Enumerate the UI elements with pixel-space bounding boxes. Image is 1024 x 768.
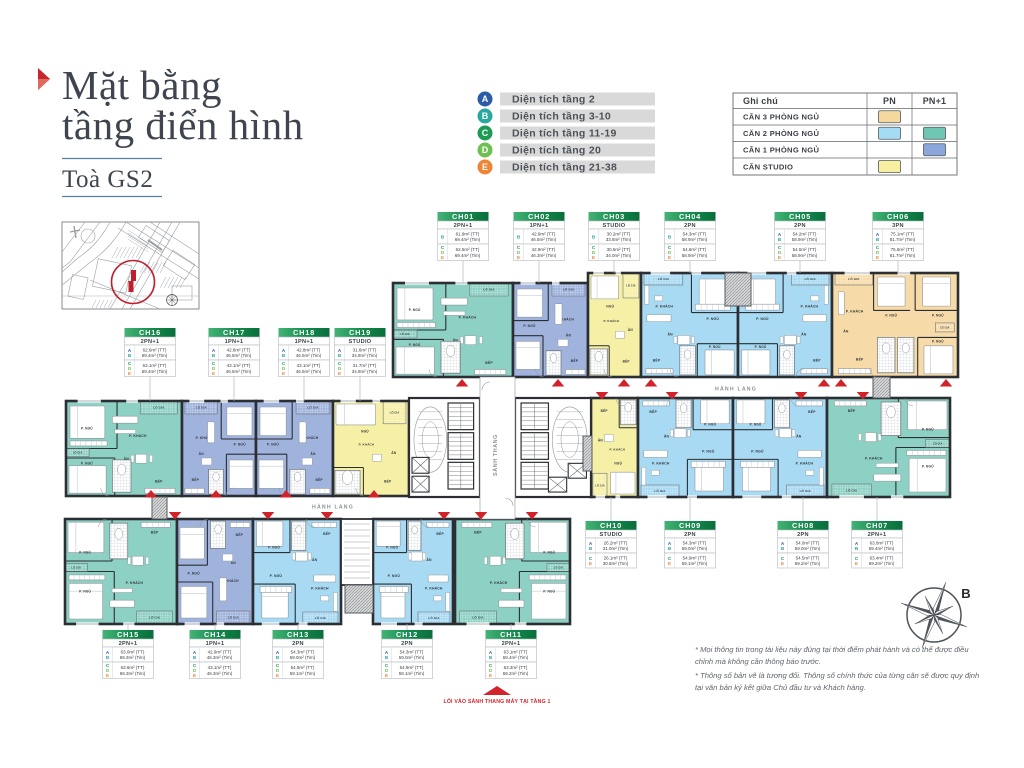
svg-text:P. NGỦ: P. NGỦ <box>81 461 93 466</box>
svg-text:E: E <box>592 255 595 260</box>
svg-text:P. KHÁCH: P. KHÁCH <box>796 460 814 465</box>
svg-text:P. NGỦ: P. NGỦ <box>922 427 934 432</box>
svg-text:59.0m² (Tim): 59.0m² (Tim) <box>399 655 425 660</box>
svg-text:LỐI VÀO SẢNH THANG MÁY TẠI TẦN: LỐI VÀO SẢNH THANG MÁY TẠI TẦNG 1 <box>443 698 550 705</box>
svg-text:2PN+1: 2PN+1 <box>868 532 887 538</box>
svg-text:E: E <box>385 673 388 678</box>
svg-text:CH12: CH12 <box>396 630 418 639</box>
svg-text:46.5m² (Tim): 46.5m² (Tim) <box>296 369 322 374</box>
svg-text:58.9m² (Tim): 58.9m² (Tim) <box>682 253 708 258</box>
svg-text:CH09: CH09 <box>679 521 701 530</box>
svg-text:E: E <box>482 162 488 172</box>
svg-text:BẾP: BẾP <box>856 356 864 361</box>
svg-text:2PN: 2PN <box>794 223 806 229</box>
svg-text:1PN+1: 1PN+1 <box>225 339 244 345</box>
svg-text:58.9m² (Tim): 58.9m² (Tim) <box>792 237 818 242</box>
svg-text:E: E <box>489 673 492 678</box>
svg-text:42.9m² (TT): 42.9m² (TT) <box>208 649 232 654</box>
svg-text:46.5m² (Tim): 46.5m² (Tim) <box>531 237 557 242</box>
svg-text:E: E <box>778 255 781 260</box>
svg-text:CH08: CH08 <box>792 521 814 530</box>
svg-text:P. NGỦ: P. NGỦ <box>268 544 280 549</box>
svg-text:P. NGỦ: P. NGỦ <box>267 442 280 447</box>
svg-text:chỉnh mà không cần thông báo t: chỉnh mà không cần thông báo trước. <box>695 657 821 666</box>
svg-text:BẾP: BẾP <box>601 408 609 413</box>
svg-text:E: E <box>106 673 109 678</box>
svg-text:P. NGỦ: P. NGỦ <box>386 544 398 549</box>
svg-text:STUDIO: STUDIO <box>349 339 372 345</box>
svg-text:B: B <box>961 586 970 601</box>
svg-text:63.0m² (TT): 63.0m² (TT) <box>870 540 894 545</box>
svg-text:CH16: CH16 <box>139 328 161 337</box>
svg-text:69.3m² (Tim): 69.3m² (Tim) <box>120 671 146 676</box>
svg-text:Diện tích tầng 2: Diện tích tầng 2 <box>512 94 595 106</box>
svg-text:63.6m² (TT): 63.6m² (TT) <box>121 665 145 670</box>
svg-text:54.2m² (TT): 54.2m² (TT) <box>793 231 817 236</box>
svg-text:62.6m² (TT): 62.6m² (TT) <box>143 347 167 352</box>
svg-text:SẢNH THANG: SẢNH THANG <box>492 434 499 476</box>
svg-text:P. NGỦ: P. NGỦ <box>79 589 91 594</box>
svg-text:P. NGỦ: P. NGỦ <box>702 448 715 453</box>
svg-text:CH15: CH15 <box>117 630 139 639</box>
svg-text:BẾP: BẾP <box>808 409 816 414</box>
svg-text:75.1m² (TT): 75.1m² (TT) <box>891 231 915 236</box>
svg-text:ĂN: ĂN <box>664 434 670 439</box>
svg-text:CH06: CH06 <box>887 212 909 221</box>
svg-text:CĂN 2 PHÒNG NGỦ: CĂN 2 PHÒNG NGỦ <box>743 129 819 138</box>
svg-text:31.7m² (TT): 31.7m² (TT) <box>353 363 377 368</box>
svg-text:LÔ GIA: LÔ GIA <box>658 276 670 281</box>
svg-text:P. KHÁCH: P. KHÁCH <box>359 442 375 447</box>
svg-text:B: B <box>482 111 489 121</box>
svg-text:2PN+1: 2PN+1 <box>141 339 160 345</box>
svg-text:81.7m² (Tim): 81.7m² (Tim) <box>890 253 916 258</box>
svg-text:P. NGỦ: P. NGỦ <box>932 339 944 344</box>
svg-text:63.1m² (TT): 63.1m² (TT) <box>504 649 528 654</box>
svg-text:31.6m² (TT): 31.6m² (TT) <box>353 347 377 352</box>
svg-text:LÔ GIA: LÔ GIA <box>848 276 860 281</box>
svg-text:P. KHÁCH: P. KHÁCH <box>425 585 443 590</box>
svg-text:E: E <box>128 371 131 376</box>
svg-text:42.9m² (TT): 42.9m² (TT) <box>532 231 556 236</box>
svg-text:BẾP: BẾP <box>571 358 579 363</box>
svg-text:BẾP: BẾP <box>155 479 163 484</box>
svg-text:E: E <box>282 371 285 376</box>
svg-text:STUDIO: STUDIO <box>600 532 623 538</box>
svg-text:63.3m² (TT): 63.3m² (TT) <box>504 665 528 670</box>
svg-text:59.1m² (Tim): 59.1m² (Tim) <box>290 671 316 676</box>
svg-text:LÔ GIA: LÔ GIA <box>153 405 165 410</box>
svg-text:46.3m² (Tim): 46.3m² (Tim) <box>207 671 233 676</box>
svg-text:P. KHÁCH: P. KHÁCH <box>129 433 147 438</box>
svg-text:54.6m² (TT): 54.6m² (TT) <box>683 247 707 252</box>
svg-text:P. NGỦ: P. NGỦ <box>885 313 897 318</box>
svg-text:1PN+1: 1PN+1 <box>206 641 225 647</box>
svg-text:D: D <box>482 145 489 155</box>
svg-text:69.4m² (Tim): 69.4m² (Tim) <box>142 353 168 358</box>
svg-text:ĂN: ĂN <box>667 331 673 336</box>
svg-text:BẾP: BẾP <box>192 477 200 482</box>
svg-text:CĂN 1 PHÒNG NGỦ: CĂN 1 PHÒNG NGỦ <box>743 146 819 155</box>
svg-text:E: E <box>876 255 879 260</box>
svg-text:P. NGỦ: P. NGỦ <box>543 589 555 594</box>
svg-text:P. KHÁCH: P. KHÁCH <box>652 460 670 465</box>
svg-text:2PN+1: 2PN+1 <box>502 641 521 647</box>
svg-text:69.4m² (Tim): 69.4m² (Tim) <box>869 546 895 551</box>
svg-text:P. NGỦ: P. NGỦ <box>270 573 283 578</box>
svg-text:81.7m² (Tim): 81.7m² (Tim) <box>890 237 916 242</box>
svg-text:69.4m² (Tim): 69.4m² (Tim) <box>455 253 481 258</box>
svg-text:43.1m² (TT): 43.1m² (TT) <box>208 665 232 670</box>
svg-text:2PN: 2PN <box>292 641 304 647</box>
svg-text:P. NGỦ: P. NGỦ <box>543 550 555 555</box>
svg-text:CH17: CH17 <box>223 328 245 337</box>
svg-text:CH03: CH03 <box>603 212 625 221</box>
svg-text:E: E <box>517 255 520 260</box>
svg-text:58.9m² (Tim): 58.9m² (Tim) <box>682 237 708 242</box>
svg-text:63.4m² (TT): 63.4m² (TT) <box>870 555 894 560</box>
svg-text:Diện tích tầng 20: Diện tích tầng 20 <box>512 145 601 157</box>
svg-text:2PN+1: 2PN+1 <box>119 641 138 647</box>
svg-text:42.9m² (TT): 42.9m² (TT) <box>532 247 556 252</box>
svg-text:E: E <box>212 371 215 376</box>
svg-text:CH02: CH02 <box>528 212 550 221</box>
svg-text:P. NGỦ: P. NGỦ <box>750 422 762 427</box>
svg-text:BẾP: BẾP <box>474 530 482 535</box>
svg-text:ĂN: ĂN <box>598 438 604 443</box>
svg-text:42.8m² (TT): 42.8m² (TT) <box>297 347 321 352</box>
svg-text:P. NGỦ: P. NGỦ <box>922 463 934 468</box>
svg-text:E: E <box>441 255 444 260</box>
svg-text:P. KHÁCH: P. KHÁCH <box>490 580 508 585</box>
svg-text:BẾP: BẾP <box>384 479 392 484</box>
svg-text:LÔ GIA: LÔ GIA <box>800 488 812 493</box>
svg-text:31.0m² (Tim): 31.0m² (Tim) <box>603 546 629 551</box>
svg-text:CH01: CH01 <box>452 212 474 221</box>
svg-text:59.0m² (Tim): 59.0m² (Tim) <box>795 546 821 551</box>
svg-text:54.3m² (TT): 54.3m² (TT) <box>683 540 707 545</box>
svg-text:P. KHÁCH: P. KHÁCH <box>311 585 329 590</box>
svg-text:46.5m² (Tim): 46.5m² (Tim) <box>226 353 252 358</box>
svg-text:E: E <box>193 673 196 678</box>
svg-text:LÔ GIA: LÔ GIA <box>228 615 240 620</box>
svg-text:1PN+1: 1PN+1 <box>295 339 314 345</box>
svg-text:BẾP: BẾP <box>151 530 159 535</box>
svg-text:BẾP: BẾP <box>813 357 821 362</box>
svg-text:ĂN: ĂN <box>312 557 318 562</box>
svg-text:69.2m² (Tim): 69.2m² (Tim) <box>869 561 895 566</box>
svg-text:46.5m² (Tim): 46.5m² (Tim) <box>226 369 252 374</box>
svg-text:34.0m² (Tim): 34.0m² (Tim) <box>606 253 632 258</box>
svg-text:69.3m² (Tim): 69.3m² (Tim) <box>120 655 146 660</box>
svg-text:3PN: 3PN <box>892 223 904 229</box>
svg-text:P. KHÁCH: P. KHÁCH <box>801 303 819 308</box>
svg-text:tầng điển hình: tầng điển hình <box>62 102 304 148</box>
svg-text:Toà GS2: Toà GS2 <box>62 166 153 193</box>
svg-text:26.1m² (TT): 26.1m² (TT) <box>604 555 628 560</box>
svg-text:54.9m² (TT): 54.9m² (TT) <box>400 665 424 670</box>
svg-text:2PN: 2PN <box>401 641 413 647</box>
svg-text:Diện tích tầng 3-10: Diện tích tầng 3-10 <box>512 111 611 123</box>
svg-text:LÔ GIA: LÔ GIA <box>472 615 484 620</box>
svg-text:30.6m² (TT): 30.6m² (TT) <box>607 247 631 252</box>
svg-text:BẾP: BẾP <box>315 477 323 482</box>
svg-text:CĂN 3 PHÒNG NGỦ: CĂN 3 PHÒNG NGỦ <box>743 113 819 122</box>
svg-text:* Thông số bản vẽ là tương đối: * Thông số bản vẽ là tương đối. Thông số… <box>695 671 979 680</box>
svg-text:33.8m² (Tim): 33.8m² (Tim) <box>606 237 632 242</box>
svg-text:P. KHÁCH: P. KHÁCH <box>846 309 864 314</box>
svg-text:54.3m² (TT): 54.3m² (TT) <box>291 649 315 654</box>
svg-text:LÔ GIA: LÔ GIA <box>428 615 440 620</box>
svg-text:BẾP: BẾP <box>653 357 661 362</box>
svg-text:ĂN: ĂN <box>310 451 316 456</box>
svg-text:BẾP: BẾP <box>436 531 444 536</box>
svg-text:ĂN: ĂN <box>801 331 807 336</box>
svg-text:59.1m² (Tim): 59.1m² (Tim) <box>682 561 708 566</box>
svg-text:54.9m² (TT): 54.9m² (TT) <box>683 555 707 560</box>
svg-text:43.1m² (TT): 43.1m² (TT) <box>227 363 251 368</box>
svg-text:P. NGỦ: P. NGỦ <box>409 307 421 312</box>
svg-text:CĂN STUDIO: CĂN STUDIO <box>743 162 793 171</box>
svg-text:Diện tích tầng 21-38: Diện tích tầng 21-38 <box>512 162 617 174</box>
svg-text:P. KHÁCH: P. KHÁCH <box>655 303 673 308</box>
svg-text:ĂN: ĂN <box>796 434 802 439</box>
svg-text:59.0m² (Tim): 59.0m² (Tim) <box>290 655 316 660</box>
svg-text:P. NGỦ: P. NGỦ <box>756 316 769 321</box>
svg-text:LÔ GIA: LÔ GIA <box>805 276 817 281</box>
svg-text:ĂN: ĂN <box>426 557 432 562</box>
svg-text:HÀNH LANG: HÀNH LANG <box>312 504 354 511</box>
svg-text:E: E <box>589 561 592 566</box>
svg-text:59.2m² (Tim): 59.2m² (Tim) <box>795 561 821 566</box>
svg-text:ĂN: ĂN <box>566 333 572 338</box>
svg-text:P. NGỦ: P. NGỦ <box>751 448 764 453</box>
svg-text:LÔ GIA: LÔ GIA <box>563 287 575 292</box>
svg-text:P. KHÁCH: P. KHÁCH <box>459 315 477 320</box>
svg-text:P. NGỦ: P. NGỦ <box>81 426 93 431</box>
svg-text:CH05: CH05 <box>789 212 811 221</box>
svg-text:LÔ GIA: LÔ GIA <box>315 615 327 620</box>
svg-text:75.6m² (TT): 75.6m² (TT) <box>891 247 915 252</box>
svg-text:E: E <box>668 255 671 260</box>
svg-text:LÔ GIA: LÔ GIA <box>307 405 319 410</box>
svg-text:P. NGỦ: P. NGỦ <box>79 550 91 555</box>
svg-text:2PN: 2PN <box>684 532 696 538</box>
svg-text:A: A <box>482 94 489 104</box>
svg-text:P. NGỦ: P. NGỦ <box>755 344 767 349</box>
svg-text:2PN+1: 2PN+1 <box>454 223 473 229</box>
svg-text:69.4m² (Tim): 69.4m² (Tim) <box>142 369 168 374</box>
svg-text:ĂN: ĂN <box>391 450 397 455</box>
svg-text:NGỦ: NGỦ <box>614 460 622 465</box>
svg-text:58.9m² (Tim): 58.9m² (Tim) <box>792 253 818 258</box>
svg-text:63.1m² (TT): 63.1m² (TT) <box>143 363 167 368</box>
svg-text:30.8m² (Tim): 30.8m² (Tim) <box>603 561 629 566</box>
svg-text:CH07: CH07 <box>866 521 888 530</box>
svg-text:P. NGỦ: P. NGỦ <box>932 313 944 318</box>
svg-text:BẾP: BẾP <box>623 358 631 363</box>
svg-text:P. NGỦ: P. NGỦ <box>707 316 720 321</box>
svg-text:ĂN: ĂN <box>628 327 634 332</box>
svg-text:P. NGỦ: P. NGỦ <box>409 342 421 347</box>
svg-text:NGỦ: NGỦ <box>361 428 369 433</box>
svg-text:E: E <box>855 561 858 566</box>
svg-text:34.8m² (Tim): 34.8m² (Tim) <box>352 353 378 358</box>
svg-text:CH13: CH13 <box>287 630 309 639</box>
svg-text:Ghi chú: Ghi chú <box>743 96 778 106</box>
svg-text:CH11: CH11 <box>500 630 522 639</box>
svg-text:63.0m² (TT): 63.0m² (TT) <box>121 649 145 654</box>
svg-text:PN+1: PN+1 <box>923 96 947 106</box>
svg-text:NGỦ: NGỦ <box>606 303 614 308</box>
svg-text:E: E <box>338 371 341 376</box>
svg-text:ĂN: ĂN <box>199 451 205 456</box>
svg-text:34.8m² (Tim): 34.8m² (Tim) <box>352 369 378 374</box>
svg-text:HÀNH LANG: HÀNH LANG <box>715 386 757 393</box>
svg-text:C: C <box>482 128 489 138</box>
svg-text:30.2m² (TT): 30.2m² (TT) <box>607 231 631 236</box>
svg-text:P. NGỦ: P. NGỦ <box>704 422 716 427</box>
svg-text:69.2m² (Tim): 69.2m² (Tim) <box>503 671 529 676</box>
svg-text:CH18: CH18 <box>293 328 315 337</box>
svg-text:54.3m² (TT): 54.3m² (TT) <box>683 231 707 236</box>
svg-text:BẾP: BẾP <box>236 532 244 537</box>
svg-text:LÔ GIA: LÔ GIA <box>149 615 161 620</box>
svg-text:61.9m² (TT): 61.9m² (TT) <box>456 231 480 236</box>
svg-text:P. NGỦ: P. NGỦ <box>234 442 247 447</box>
svg-text:P. NGỦ: P. NGỦ <box>523 323 536 328</box>
svg-text:P. KHÁCH: P. KHÁCH <box>865 455 883 460</box>
svg-text:62.5m² (TT): 62.5m² (TT) <box>456 247 480 252</box>
svg-text:BẾP: BẾP <box>848 408 856 413</box>
svg-text:43.1m² (TT): 43.1m² (TT) <box>297 363 321 368</box>
svg-text:STUDIO: STUDIO <box>603 223 626 229</box>
svg-text:LÔ GIA: LÔ GIA <box>483 287 495 292</box>
svg-text:E: E <box>276 673 279 678</box>
svg-text:54.0m² (TT): 54.0m² (TT) <box>796 540 820 545</box>
svg-text:46.3m² (Tim): 46.3m² (Tim) <box>207 655 233 660</box>
svg-text:46.3m² (Tim): 46.3m² (Tim) <box>531 253 557 258</box>
svg-text:26.2m² (TT): 26.2m² (TT) <box>604 540 628 545</box>
svg-text:2PN: 2PN <box>797 532 809 538</box>
svg-text:46.5m² (Tim): 46.5m² (Tim) <box>296 353 322 358</box>
svg-text:2PN: 2PN <box>684 223 696 229</box>
svg-text:1PN+1: 1PN+1 <box>530 223 549 229</box>
svg-text:54.3m² (TT): 54.3m² (TT) <box>400 649 424 654</box>
svg-text:E: E <box>781 561 784 566</box>
svg-text:54.5m² (TT): 54.5m² (TT) <box>793 247 817 252</box>
svg-text:CH04: CH04 <box>679 212 701 221</box>
svg-text:54.5m² (TT): 54.5m² (TT) <box>796 555 820 560</box>
svg-text:P. NGỦ: P. NGỦ <box>709 344 721 349</box>
svg-text:ĂN: ĂN <box>843 328 849 333</box>
svg-text:69.4m² (Tim): 69.4m² (Tim) <box>455 237 481 242</box>
svg-text:* Mọi thông tin trong tài liệu: * Mọi thông tin trong tài liệu này đúng … <box>695 645 969 654</box>
svg-text:BẾP: BẾP <box>485 360 493 365</box>
svg-text:P. KHÁCH: P. KHÁCH <box>603 318 619 323</box>
svg-text:BẾP: BẾP <box>323 531 331 536</box>
svg-text:59.0m² (Tim): 59.0m² (Tim) <box>682 546 708 551</box>
svg-text:42.8m² (TT): 42.8m² (TT) <box>227 347 251 352</box>
svg-text:P. NGỦ: P. NGỦ <box>188 571 201 576</box>
svg-text:P. KHÁCH: P. KHÁCH <box>609 446 625 451</box>
svg-text:tại văn bản ký kết giữa Chủ đầ: tại văn bản ký kết giữa Chủ đầu tư và Kh… <box>695 683 866 692</box>
svg-text:P. NGỦ: P. NGỦ <box>388 573 401 578</box>
svg-text:54.9m² (TT): 54.9m² (TT) <box>291 665 315 670</box>
svg-text:Diện tích tầng 11-19: Diện tích tầng 11-19 <box>512 128 617 140</box>
svg-text:CH19: CH19 <box>349 328 371 337</box>
svg-text:LÔ GIA: LÔ GIA <box>654 488 666 493</box>
svg-text:59.1m² (Tim): 59.1m² (Tim) <box>399 671 425 676</box>
svg-text:LÔ GIA: LÔ GIA <box>196 405 208 410</box>
svg-text:CH10: CH10 <box>600 521 622 530</box>
svg-text:BẾP: BẾP <box>649 409 657 414</box>
svg-text:E: E <box>668 561 671 566</box>
svg-text:CH14: CH14 <box>204 630 226 639</box>
svg-text:69.4m² (Tim): 69.4m² (Tim) <box>503 655 529 660</box>
svg-text:PN: PN <box>883 96 896 106</box>
svg-text:LÔ GIA: LÔ GIA <box>846 488 858 493</box>
svg-text:P. KHÁCH: P. KHÁCH <box>126 580 144 585</box>
